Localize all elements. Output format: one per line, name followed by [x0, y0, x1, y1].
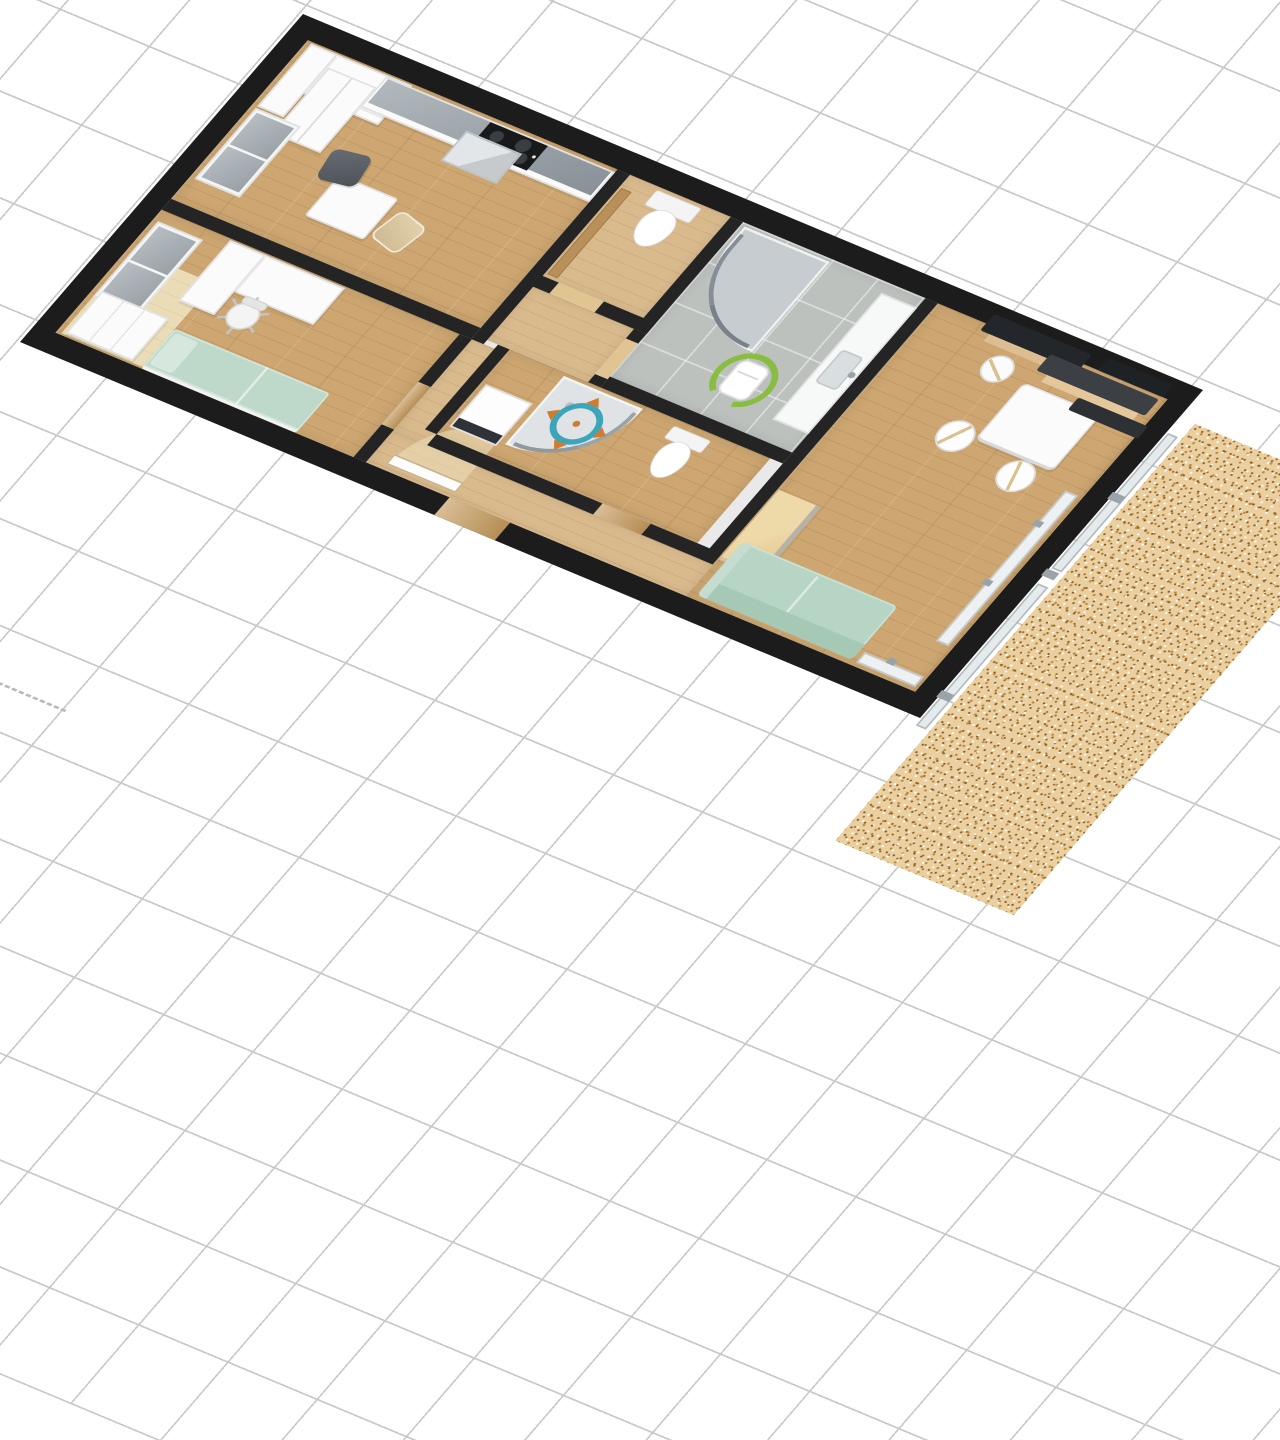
sofa-seat-seam	[786, 576, 819, 613]
selection-ring[interactable]	[706, 348, 781, 412]
floorplan-scene	[20, 14, 1203, 718]
rotate-center-dot[interactable]	[571, 420, 582, 428]
bed-duvet-seam	[235, 367, 269, 405]
